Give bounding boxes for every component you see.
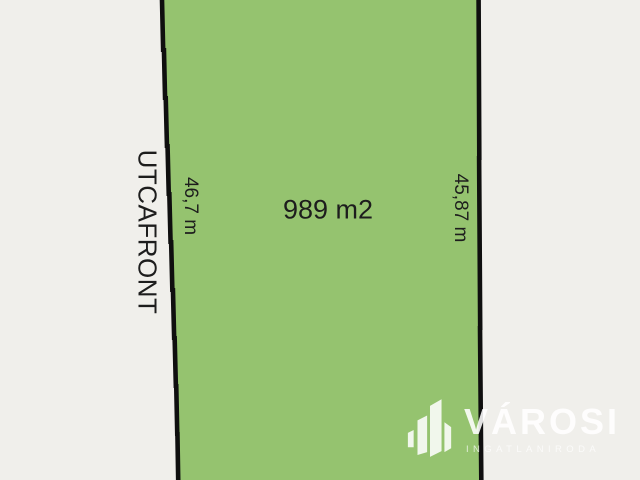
- brand-text-block: VÁROSI INGATLANIRODA: [464, 404, 620, 455]
- brand-tagline: INGATLANIRODA: [466, 444, 620, 455]
- right-length-label: 45,87 m: [449, 174, 471, 243]
- city-buildings-icon: [405, 396, 455, 462]
- brand-logo: VÁROSI INGATLANIRODA: [405, 394, 620, 464]
- plot-sketch: UTCAFRONT 46,7 m 45,87 m 989 m2 VÁROSI I…: [0, 0, 640, 480]
- area-label: 989 m2: [283, 195, 373, 226]
- brand-name: VÁROSI: [464, 404, 620, 440]
- left-length-label: 46,7 m: [179, 177, 201, 235]
- street-front-label: UTCAFRONT: [132, 150, 163, 315]
